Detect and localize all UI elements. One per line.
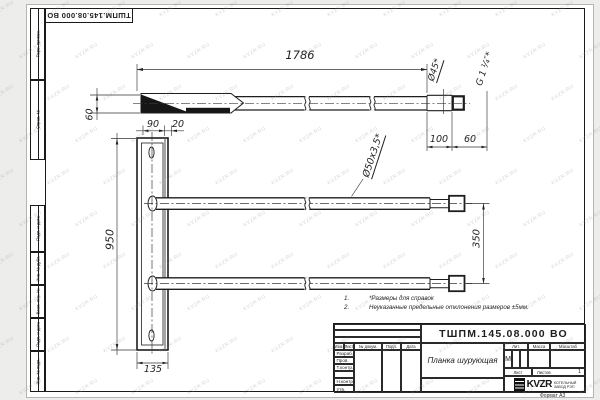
tb-header-mass: Масса [528, 343, 550, 350]
tubes [150, 95, 465, 291]
dim-flange: 20 [167, 119, 189, 130]
tb-header-date: Дата [401, 343, 421, 350]
dim-tube-pitch: 350 [472, 225, 483, 253]
drawing-page: 1786 100 60 90 20 60 950 350 135 Ø45* G … [0, 0, 600, 400]
dim-neck-length: 100 [425, 134, 453, 145]
dim-end-length: 60 [458, 134, 482, 145]
note-2-number: 2. [344, 304, 349, 311]
tb-litera-value: М [504, 350, 512, 368]
tb-sheets-cell: Листов 1 [532, 368, 586, 376]
tb-scale-value [550, 350, 586, 368]
tb-header-sheet: Лист [344, 343, 354, 350]
format-label: Формат А3 [540, 393, 565, 399]
tb-part-name: Планка шурующая [421, 343, 504, 378]
tube-end-caps [148, 147, 157, 341]
dim-plank-height: 950 [104, 226, 117, 254]
tb-header-sign: Подп. [382, 343, 401, 350]
dim-base-width: 135 [138, 364, 168, 375]
centerlines [133, 103, 472, 356]
kvzr-org-name: КОТЕЛЬНЫЙ ЗАВОД РЭП [554, 381, 577, 389]
dim-overall-length: 1786 [265, 48, 335, 62]
tb-material-cell [421, 378, 504, 393]
dim-web: 90 [141, 119, 165, 130]
tb-sheets-value: 1 [578, 369, 581, 375]
plank-channel [137, 138, 168, 350]
tb-header-change: Изм. [334, 343, 344, 350]
note-1-text: *Размеры для справок [369, 295, 434, 302]
tb-row-prov: Пров. [334, 357, 354, 364]
kvzr-logo-icon [514, 378, 525, 391]
tb-header-scale: Масштаб [550, 343, 586, 350]
tb-row-razrab: Разраб. [334, 350, 354, 357]
note-2-text: Неуказанные предельные отклонения размер… [369, 304, 529, 311]
note-1-number: 1. [344, 295, 349, 302]
tb-designation: ТШПМ.145.08.000 ВО [421, 324, 586, 343]
tb-header-litera: Лит. [504, 343, 528, 350]
tb-logo-cell: KVZR КОТЕЛЬНЫЙ ЗАВОД РЭП [504, 376, 586, 393]
tb-mass-value [528, 350, 550, 368]
tb-row-utv: Утв. [334, 385, 354, 393]
break-symbols [305, 96, 376, 291]
tb-row-nkontr: Н.контр. [334, 378, 354, 385]
tb-sheets-label: Листов [537, 370, 551, 375]
kvzr-logo-text: KVZR [527, 379, 552, 390]
dim-left-height: 60 [85, 104, 96, 126]
tb-header-docno: № докум. [354, 343, 382, 350]
tb-sheet-label: Лист [504, 368, 532, 376]
tb-row-tkontr: Т.контр. [334, 364, 354, 371]
title-block: Изм. Лист № докум. Подп. Дата Разраб. Пр… [333, 323, 585, 392]
